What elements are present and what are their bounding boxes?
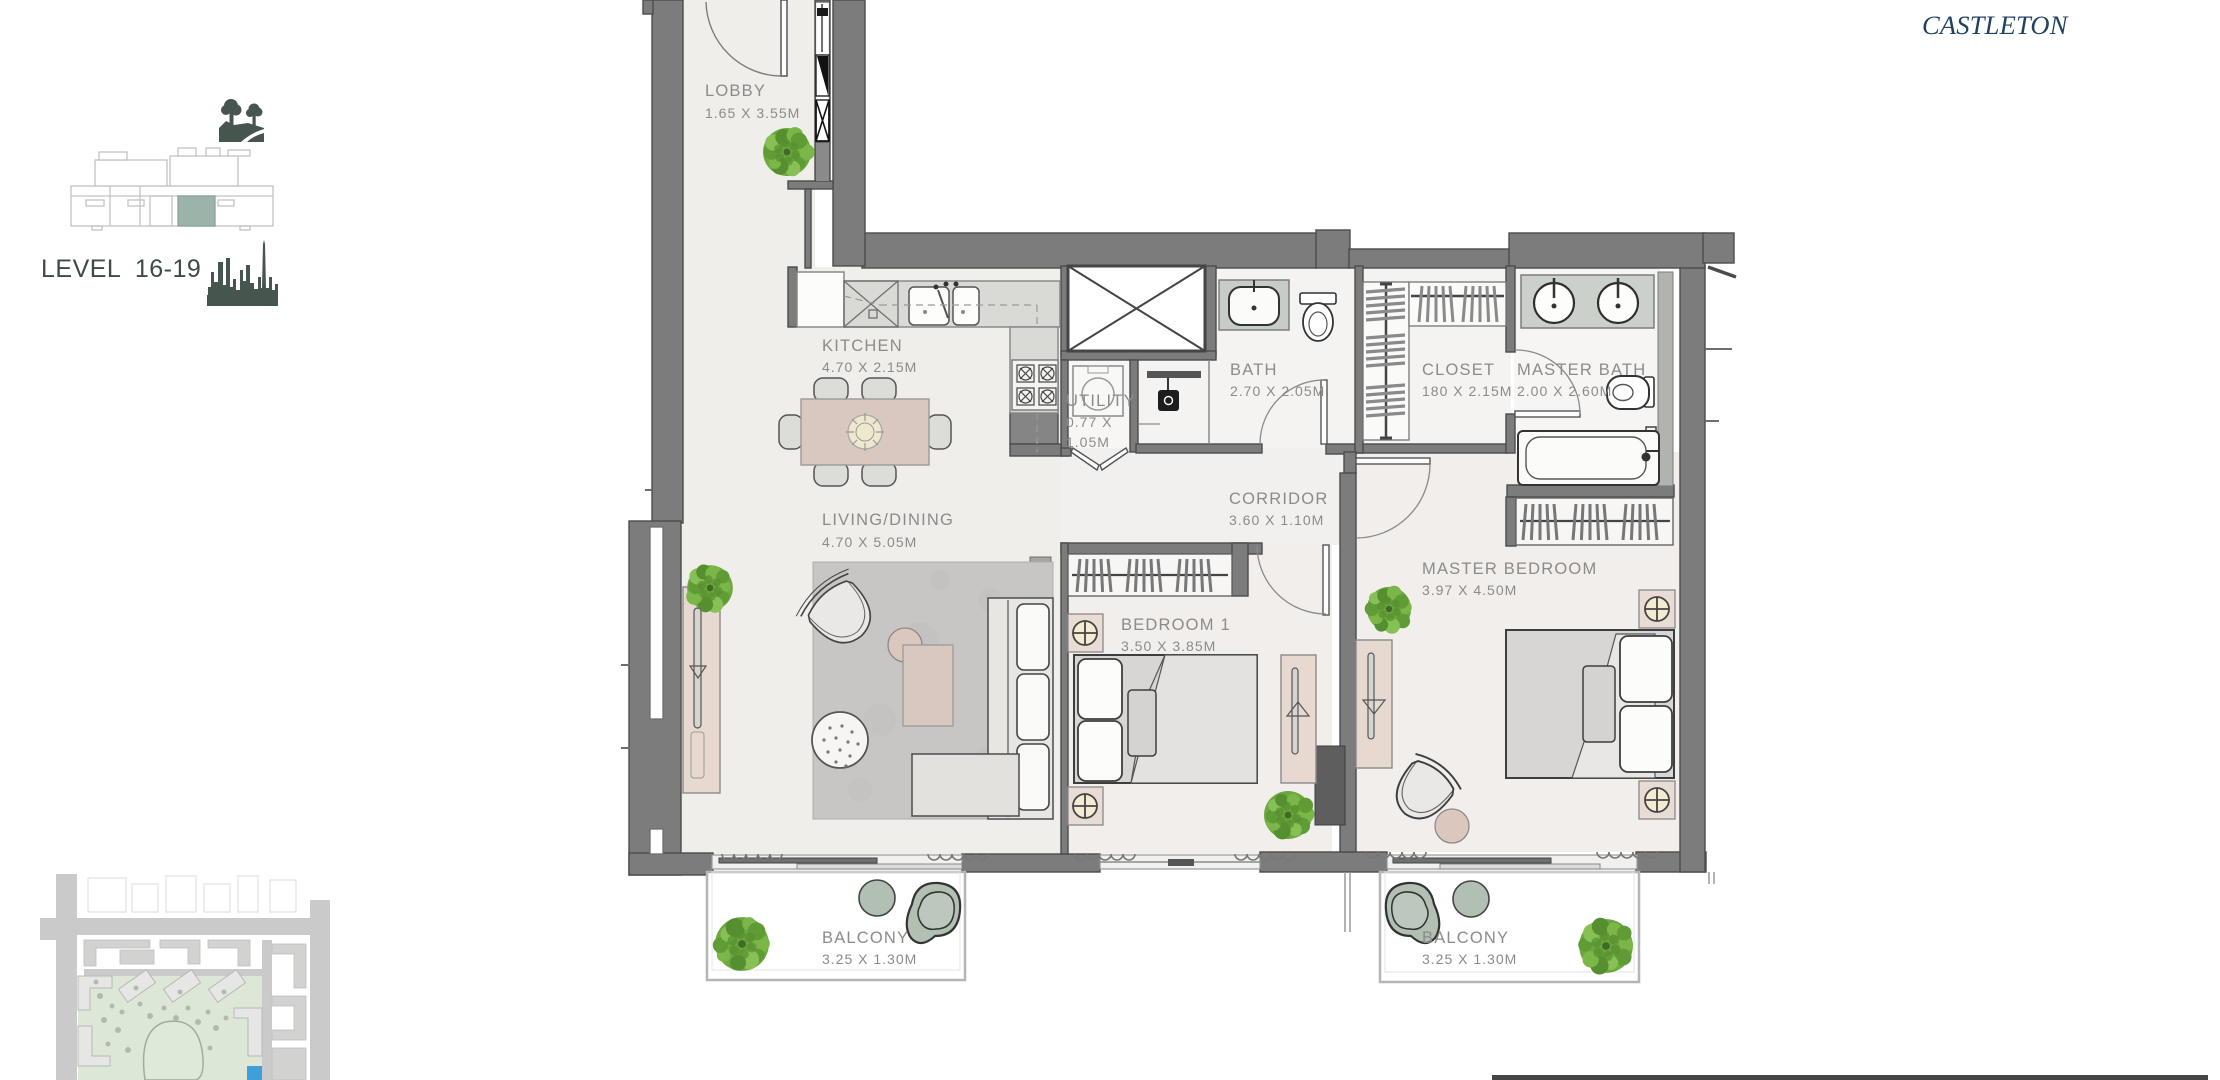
svg-text:3.25 X 1.30M: 3.25 X 1.30M [1422,951,1517,967]
svg-text:3.97 X 4.50M: 3.97 X 4.50M [1422,582,1517,598]
svg-text:1.65 X 3.55M: 1.65 X 3.55M [705,105,800,121]
svg-text:LOBBY: LOBBY [705,82,766,100]
svg-text:MASTER BATH: MASTER BATH [1517,361,1646,379]
svg-text:LEVEL 16-19: LEVEL 16-19 [41,255,201,283]
svg-text:2.70 X 2.05M: 2.70 X 2.05M [1230,383,1325,399]
svg-text:KITCHEN: KITCHEN [822,337,903,355]
svg-text:3.50 X 3.85M: 3.50 X 3.85M [1121,638,1216,654]
svg-text:3.60 X 1.10M: 3.60 X 1.10M [1229,512,1324,528]
svg-text:4.70 X 5.05M: 4.70 X 5.05M [822,534,917,550]
svg-text:UTILITY: UTILITY [1066,392,1136,410]
svg-text:BALCONY: BALCONY [822,929,909,947]
svg-text:180 X 2.15M: 180 X 2.15M [1422,383,1512,399]
svg-text:MASTER BEDROOM: MASTER BEDROOM [1422,560,1597,578]
svg-text:CLOSET: CLOSET [1422,361,1495,379]
svg-text:BEDROOM 1: BEDROOM 1 [1121,616,1231,634]
svg-text:4.70 X 2.15M: 4.70 X 2.15M [822,359,917,375]
svg-text:0.77 X: 0.77 X [1066,414,1112,430]
svg-text:LIVING/DINING: LIVING/DINING [822,511,954,529]
svg-text:BATH: BATH [1230,361,1278,379]
svg-text:CORRIDOR: CORRIDOR [1229,490,1328,508]
svg-text:2.00 X 2.60M: 2.00 X 2.60M [1517,383,1612,399]
svg-text:BALCONY: BALCONY [1422,929,1509,947]
svg-text:3.25 X 1.30M: 3.25 X 1.30M [822,951,917,967]
svg-text:1.05M: 1.05M [1066,434,1110,450]
svg-text:CASTLETON: CASTLETON [1922,10,2069,40]
